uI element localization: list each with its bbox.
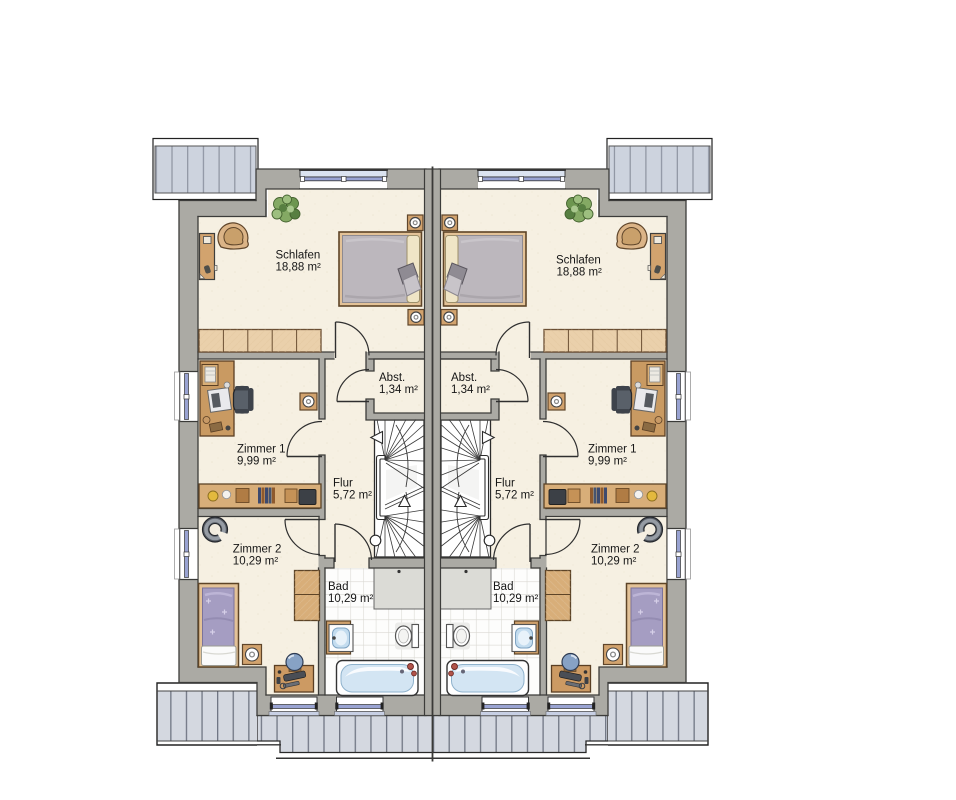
svg-text:Zimmer 1: Zimmer 1	[237, 443, 286, 455]
svg-text:Abst.: Abst.	[451, 372, 477, 384]
svg-text:Bad: Bad	[493, 581, 513, 593]
svg-text:9,99 m²: 9,99 m²	[588, 455, 627, 467]
svg-text:5,72 m²: 5,72 m²	[333, 489, 372, 501]
svg-text:Flur: Flur	[333, 477, 353, 489]
svg-text:9,99 m²: 9,99 m²	[237, 455, 276, 467]
svg-text:Zimmer 2: Zimmer 2	[233, 543, 282, 555]
svg-text:Zimmer 2: Zimmer 2	[591, 543, 640, 555]
svg-text:1,34 m²: 1,34 m²	[379, 384, 418, 396]
svg-text:18,88 m²: 18,88 m²	[276, 262, 322, 274]
svg-text:18,88 m²: 18,88 m²	[557, 266, 603, 278]
svg-text:10,29 m²: 10,29 m²	[591, 555, 637, 567]
svg-text:Schlafen: Schlafen	[556, 254, 601, 266]
svg-text:Bad: Bad	[328, 581, 348, 593]
svg-text:Flur: Flur	[495, 477, 515, 489]
svg-text:10,29 m²: 10,29 m²	[233, 555, 279, 567]
svg-text:Abst.: Abst.	[379, 372, 405, 384]
svg-text:5,72 m²: 5,72 m²	[495, 489, 534, 501]
svg-text:Schlafen: Schlafen	[276, 250, 321, 262]
svg-text:10,29 m²: 10,29 m²	[328, 593, 374, 605]
svg-text:1,34 m²: 1,34 m²	[451, 384, 490, 396]
svg-text:10,29 m²: 10,29 m²	[493, 593, 539, 605]
svg-text:Zimmer 1: Zimmer 1	[588, 443, 637, 455]
